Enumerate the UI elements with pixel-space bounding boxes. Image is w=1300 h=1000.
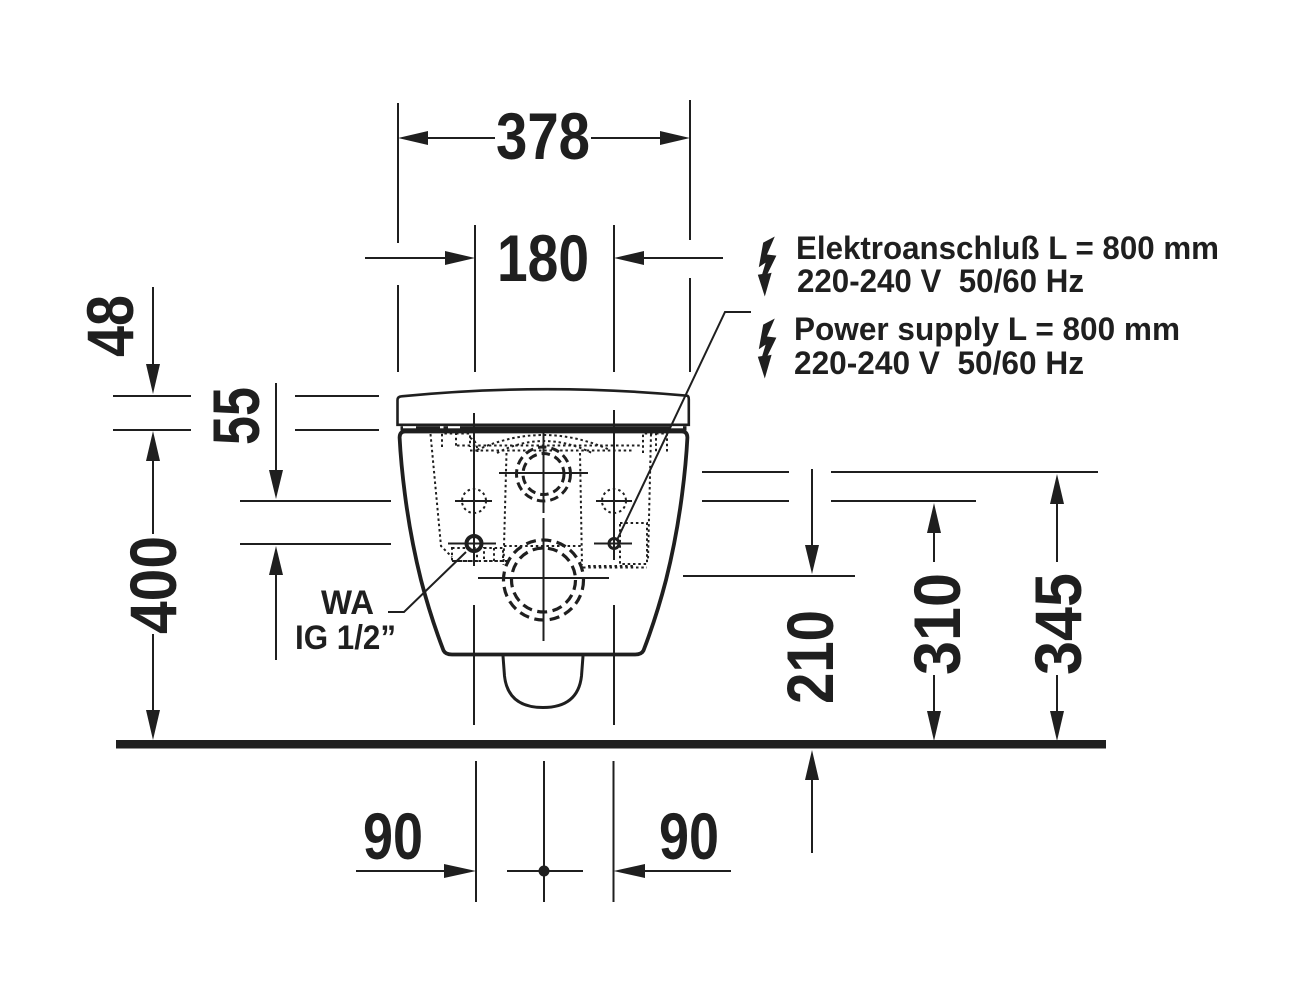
svg-text:Power supply L = 800 mm: Power supply L = 800 mm xyxy=(794,311,1180,347)
svg-text:220-240 V 50/60 Hz: 220-240 V 50/60 Hz xyxy=(797,263,1084,299)
svg-text:180: 180 xyxy=(497,221,589,295)
svg-text:210: 210 xyxy=(773,610,847,704)
svg-text:345: 345 xyxy=(1021,573,1095,675)
svg-text:IG 1/2”: IG 1/2” xyxy=(295,619,396,657)
svg-text:Elektroanschluß L = 800 mm: Elektroanschluß L = 800 mm xyxy=(796,230,1219,266)
svg-text:90: 90 xyxy=(659,799,719,873)
svg-text:WA: WA xyxy=(321,584,374,622)
svg-text:90: 90 xyxy=(363,799,423,873)
svg-text:55: 55 xyxy=(199,387,273,445)
svg-text:378: 378 xyxy=(496,99,590,173)
svg-text:310: 310 xyxy=(900,573,974,675)
svg-text:400: 400 xyxy=(116,536,190,634)
svg-text:220-240 V 50/60 Hz: 220-240 V 50/60 Hz xyxy=(794,345,1084,381)
svg-text:48: 48 xyxy=(73,295,147,357)
